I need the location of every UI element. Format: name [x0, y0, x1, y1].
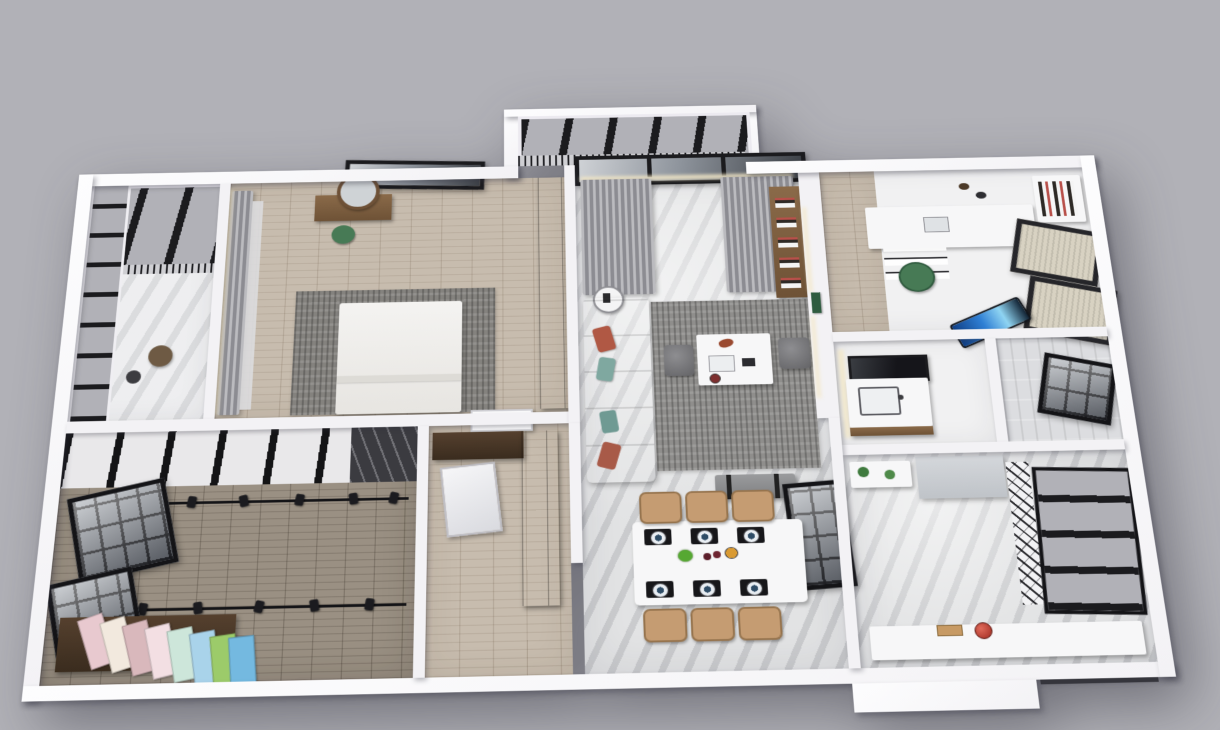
placemat-4 — [646, 581, 674, 598]
plate-3 — [743, 529, 760, 544]
dining-fruit-dark — [703, 553, 711, 560]
living-window-mullion — [647, 155, 652, 177]
dining-chair-5 — [690, 607, 735, 641]
bedroom-bed — [335, 301, 462, 415]
coffee-table-plate-dark — [742, 358, 755, 366]
media-wall-green-vase — [811, 292, 822, 313]
living-rug — [651, 299, 821, 471]
study-desk-laptop — [923, 217, 950, 233]
placemat-6 — [740, 579, 768, 596]
spotlight — [239, 494, 249, 507]
plate-2 — [696, 530, 713, 545]
placemat-2 — [690, 528, 718, 545]
floorplan-shadow-wrap — [0, 0, 1220, 730]
study-desk — [865, 204, 1038, 249]
living-curtain-left — [580, 179, 656, 296]
dining-chair-1 — [639, 491, 683, 524]
render-canvas — [0, 0, 1220, 730]
ottoman-right — [778, 337, 812, 369]
foyer-wardrobe-side — [522, 430, 560, 606]
floorplan — [17, 99, 1182, 730]
outer-slab-bottom-right — [852, 680, 1040, 713]
shower-window — [1037, 352, 1117, 425]
study-bookshelf-books — [1038, 181, 1079, 216]
kitchen-shelf-plant — [857, 467, 869, 478]
study-shoes2 — [975, 192, 987, 199]
plate-5 — [699, 582, 716, 597]
kitchen-cutting-board — [936, 625, 963, 637]
living-sofa — [583, 297, 656, 483]
spotlight — [309, 599, 320, 612]
dining-chair-6 — [737, 606, 783, 640]
coffee-table-tray — [708, 355, 735, 372]
dining-chair-4 — [643, 608, 688, 642]
study-shoes — [958, 183, 969, 190]
spotlight — [348, 492, 358, 505]
bath-faucet — [898, 395, 904, 400]
plate-6 — [746, 581, 764, 596]
kitchen-fridge — [915, 455, 1007, 498]
placemat-5 — [693, 580, 721, 597]
spotlight — [193, 601, 203, 614]
placemat-1 — [644, 529, 672, 546]
bedroom-wardrobe — [538, 177, 569, 408]
plate-1 — [650, 531, 667, 546]
ottoman-left — [663, 345, 694, 377]
bath-sink — [858, 386, 902, 415]
kitchen-counter — [869, 621, 1146, 661]
foyer-leaning-mirror — [440, 462, 503, 538]
bath-wood-ledge — [850, 426, 934, 436]
kitchen-shelf-plant2 — [884, 470, 895, 480]
placemat-3 — [737, 527, 765, 544]
foyer-wardrobe-top — [432, 431, 523, 460]
dining-chair-2 — [685, 491, 729, 524]
studio-dark-marble-corner — [350, 426, 418, 482]
plate-4 — [652, 583, 669, 598]
dining-chair-3 — [731, 490, 775, 523]
